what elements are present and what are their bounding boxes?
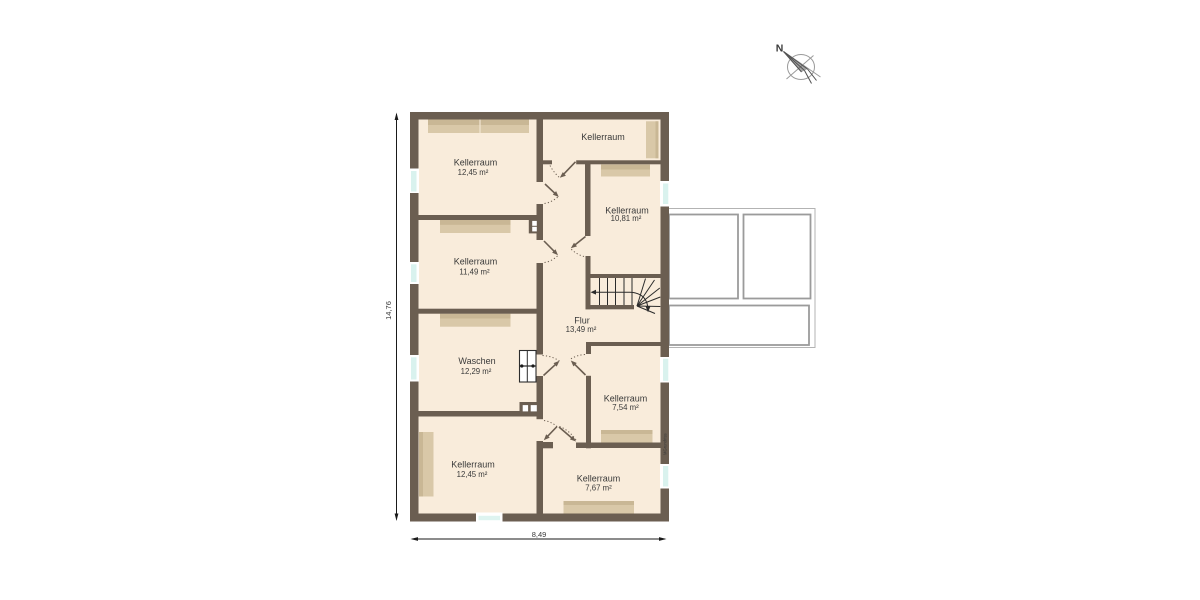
svg-text:7,54 m²: 7,54 m²: [612, 403, 639, 412]
svg-text:Kellerraum: Kellerraum: [451, 460, 495, 470]
svg-text:Kellerraum: Kellerraum: [577, 474, 621, 484]
svg-text:N: N: [776, 43, 784, 55]
svg-text:Waschen: Waschen: [458, 356, 495, 366]
svg-text:12,29 m²: 12,29 m²: [461, 367, 492, 376]
svg-text:Kellerraum: Kellerraum: [454, 158, 498, 168]
svg-text:Kellerraum: Kellerraum: [454, 257, 498, 267]
svg-text:10,81 m²: 10,81 m²: [611, 214, 642, 223]
svg-text:12,45 m²: 12,45 m²: [458, 168, 489, 177]
svg-text:7,67 m²: 7,67 m²: [585, 484, 612, 493]
svg-text:Kellerraum: Kellerraum: [581, 132, 625, 142]
svg-text:Flur: Flur: [574, 316, 590, 326]
svg-text:MGrundriss: MGrundriss: [663, 433, 668, 455]
svg-text:11,49 m²: 11,49 m²: [459, 268, 490, 277]
svg-text:14,76: 14,76: [384, 301, 393, 320]
svg-text:Kellerraum: Kellerraum: [604, 394, 648, 404]
svg-text:12,45 m²: 12,45 m²: [457, 470, 488, 479]
svg-text:13,49 m²: 13,49 m²: [566, 325, 597, 334]
svg-text:8,49: 8,49: [532, 530, 547, 539]
